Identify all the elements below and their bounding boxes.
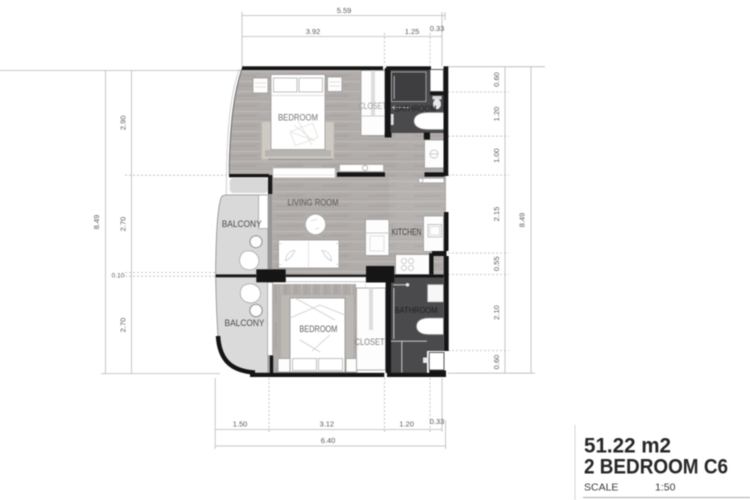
svg-text:1:50: 1:50 [655, 482, 676, 494]
svg-text:1.20: 1.20 [399, 420, 414, 429]
svg-text:BEDROOM: BEDROOM [278, 112, 318, 123]
svg-text:8.49: 8.49 [518, 213, 527, 228]
svg-text:2.10: 2.10 [492, 305, 501, 320]
svg-text:1.25: 1.25 [405, 27, 420, 36]
svg-text:0.60: 0.60 [492, 72, 501, 87]
svg-text:0.10: 0.10 [112, 273, 125, 280]
svg-text:8.49: 8.49 [92, 215, 101, 230]
svg-text:3.92: 3.92 [306, 27, 321, 36]
svg-text:3.12: 3.12 [319, 420, 334, 429]
svg-text:BALCONY: BALCONY [225, 318, 266, 329]
svg-text:2.70: 2.70 [119, 318, 128, 333]
svg-text:CLOSET: CLOSET [359, 101, 387, 111]
svg-text:5.59: 5.59 [337, 6, 352, 15]
svg-text:2.90: 2.90 [119, 115, 128, 130]
svg-text:BALCONY: BALCONY [222, 219, 263, 230]
svg-text:6.40: 6.40 [321, 436, 336, 445]
svg-text:1.50: 1.50 [233, 420, 248, 429]
svg-text:CLOSET: CLOSET [355, 337, 385, 347]
svg-text:LIVING ROOM: LIVING ROOM [288, 198, 339, 209]
svg-text:BATHROOM: BATHROOM [395, 305, 438, 315]
svg-text:2 BEDROOM C6: 2 BEDROOM C6 [584, 455, 728, 479]
svg-text:KITCHEN: KITCHEN [392, 227, 422, 237]
svg-text:1.20: 1.20 [492, 107, 501, 122]
svg-text:2.70: 2.70 [119, 217, 128, 232]
svg-text:0.60: 0.60 [492, 355, 501, 370]
svg-text:1.00: 1.00 [492, 148, 501, 163]
svg-text:BEDROOM: BEDROOM [299, 324, 337, 335]
svg-text:0.33: 0.33 [430, 24, 445, 33]
svg-text:0.33: 0.33 [430, 417, 445, 426]
svg-text:SCALE: SCALE [584, 482, 618, 494]
svg-text:2.15: 2.15 [492, 207, 501, 222]
svg-text:0.55: 0.55 [492, 256, 501, 271]
svg-text:BATHROOM: BATHROOM [395, 104, 437, 114]
